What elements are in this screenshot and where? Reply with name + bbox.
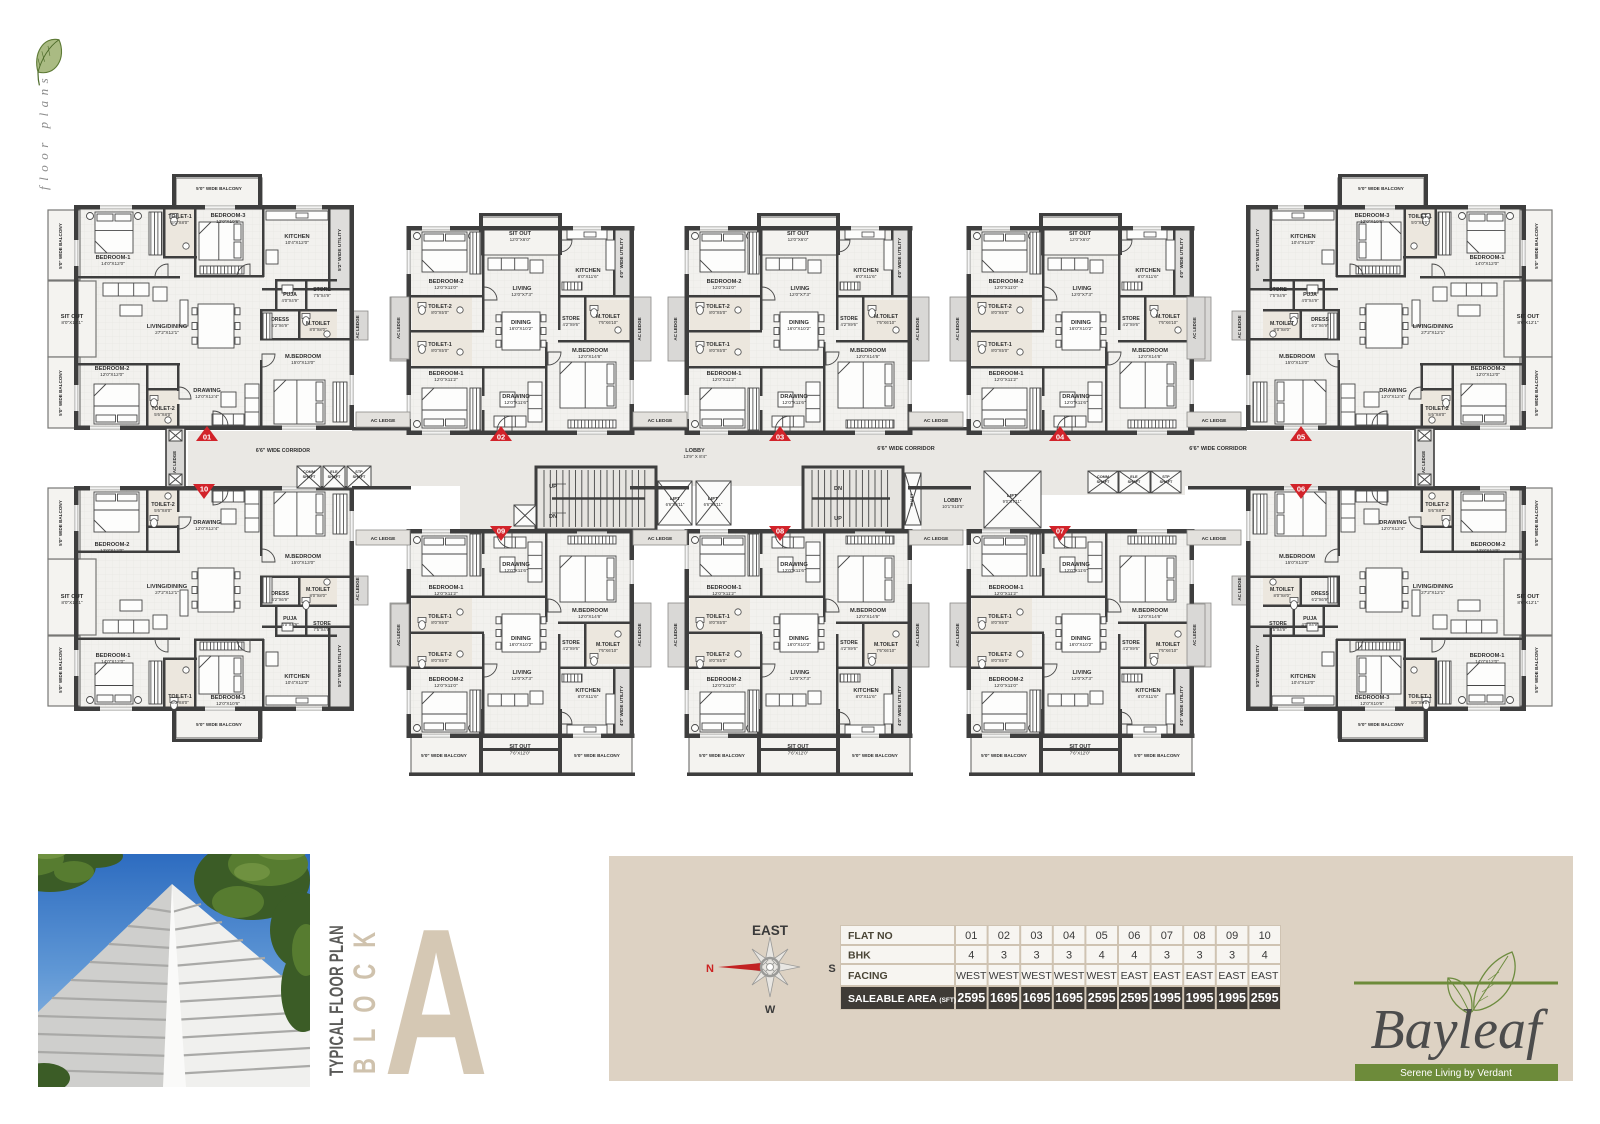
svg-text:BEDROOM-1: BEDROOM-1 <box>429 371 464 377</box>
svg-text:LIVING: LIVING <box>513 286 533 292</box>
svg-text:BEDROOM-1: BEDROOM-1 <box>429 585 464 591</box>
svg-text:EAST: EAST <box>1186 970 1214 982</box>
svg-text:KITCHEN: KITCHEN <box>1135 688 1160 694</box>
svg-text:LIVING: LIVING <box>513 670 533 676</box>
svg-text:TYPICAL FLOOR PLAN: TYPICAL FLOOR PLAN <box>325 925 347 1076</box>
svg-text:DINING: DINING <box>511 320 531 326</box>
svg-text:5'0" WIDE BALCONY: 5'0" WIDE BALCONY <box>1534 500 1539 546</box>
svg-text:LIVING: LIVING <box>791 670 811 676</box>
svg-text:5'6"X8'0": 5'6"X8'0" <box>154 412 172 417</box>
svg-text:16'0"X10'2": 16'0"X10'2" <box>1069 642 1093 647</box>
svg-text:8'0"X5'0": 8'0"X5'0" <box>709 620 727 625</box>
svg-text:15'0"X13'0": 15'0"X13'0" <box>291 560 315 565</box>
svg-text:SHAFT: SHAFT <box>909 493 914 507</box>
svg-text:27'2"X12'1": 27'2"X12'1" <box>1421 590 1445 595</box>
svg-text:TOILET-1: TOILET-1 <box>988 614 1012 620</box>
svg-text:BEDROOM-2: BEDROOM-2 <box>95 366 130 372</box>
svg-text:DINING: DINING <box>789 320 809 326</box>
svg-text:W: W <box>765 1004 776 1016</box>
svg-text:8'0"X5'0": 8'0"X5'0" <box>991 620 1009 625</box>
svg-text:KITCHEN: KITCHEN <box>853 688 878 694</box>
svg-text:7'6"X6'10": 7'6"X6'10" <box>876 648 896 653</box>
svg-text:8'0"X12'1": 8'0"X12'1" <box>1517 320 1538 325</box>
svg-text:SHAFT: SHAFT <box>328 475 341 479</box>
svg-text:STORE: STORE <box>1122 640 1140 646</box>
svg-text:STORE: STORE <box>562 316 580 322</box>
svg-text:12'0"X6'0": 12'0"X6'0" <box>1070 237 1091 242</box>
svg-text:9'0"X7'11": 9'0"X7'11" <box>1003 499 1022 504</box>
svg-text:TOILET-1: TOILET-1 <box>428 614 452 620</box>
svg-text:27'2"X12'1": 27'2"X12'1" <box>1421 330 1445 335</box>
svg-text:12'0"X12'0": 12'0"X12'0" <box>1476 372 1500 377</box>
svg-text:3: 3 <box>1164 950 1170 962</box>
svg-text:5'0"X8'0": 5'0"X8'0" <box>171 220 189 225</box>
svg-text:KITCHEN: KITCHEN <box>575 688 600 694</box>
svg-text:8'0"X11'6": 8'0"X11'6" <box>1138 694 1159 699</box>
svg-text:DRAWING: DRAWING <box>1062 562 1090 568</box>
svg-text:STP: STP <box>355 470 363 474</box>
svg-text:4'0" WIDE UTILITY: 4'0" WIDE UTILITY <box>619 686 624 726</box>
svg-text:TOILET-2: TOILET-2 <box>428 652 452 658</box>
svg-text:7'6"X12'0": 7'6"X12'0" <box>788 751 809 756</box>
svg-text:BEDROOM-1: BEDROOM-1 <box>1470 255 1505 261</box>
svg-text:STORE: STORE <box>1122 316 1140 322</box>
svg-text:12'0"X11'0": 12'0"X11'0" <box>434 683 458 688</box>
svg-text:TOILET-2: TOILET-2 <box>151 406 175 412</box>
svg-text:12'0"X11'2": 12'0"X11'2" <box>712 591 736 596</box>
svg-text:5'6"X8'0": 5'6"X8'0" <box>1428 508 1446 513</box>
svg-text:STORE: STORE <box>313 287 331 293</box>
svg-text:TOILET-2: TOILET-2 <box>428 304 452 310</box>
svg-text:5'0" WIDE BALCONY: 5'0" WIDE BALCONY <box>58 223 63 269</box>
svg-text:10'4"X12'0": 10'4"X12'0" <box>285 680 309 685</box>
svg-text:02: 02 <box>998 930 1010 942</box>
svg-text:ELE: ELE <box>1130 475 1138 479</box>
svg-text:5'0" WIDE BALCONY: 5'0" WIDE BALCONY <box>1534 370 1539 416</box>
svg-text:SHAFT: SHAFT <box>353 475 366 479</box>
svg-text:8'0"X5'0": 8'0"X5'0" <box>709 658 727 663</box>
svg-text:M.TOILET: M.TOILET <box>1270 587 1295 593</box>
svg-text:AC LEDGE: AC LEDGE <box>924 536 950 542</box>
svg-text:15'0"X13'0": 15'0"X13'0" <box>1285 360 1309 365</box>
svg-text:WEST: WEST <box>1087 970 1118 982</box>
svg-text:5'0" WIDE BALCONY: 5'0" WIDE BALCONY <box>1358 722 1404 727</box>
svg-text:15'0"X13'0": 15'0"X13'0" <box>291 360 315 365</box>
svg-text:2595: 2595 <box>957 991 985 1005</box>
svg-text:4'0"X4'9": 4'0"X4'9" <box>282 298 299 303</box>
svg-text:BEDROOM-1: BEDROOM-1 <box>989 371 1024 377</box>
svg-text:EAST: EAST <box>1251 970 1279 982</box>
svg-text:5'0"X8'0": 5'0"X8'0" <box>1411 220 1429 225</box>
svg-text:BEDROOM-2: BEDROOM-2 <box>989 677 1024 683</box>
svg-text:N: N <box>706 963 714 975</box>
svg-text:M.TOILET: M.TOILET <box>1270 321 1295 327</box>
svg-text:4'0"X4'9": 4'0"X4'9" <box>1302 298 1319 303</box>
svg-text:AC LEDGE: AC LEDGE <box>172 451 177 473</box>
svg-text:AC LEDGE: AC LEDGE <box>955 623 960 646</box>
svg-text:8'0"X8'0": 8'0"X8'0" <box>1274 593 1291 598</box>
svg-text:SHAFT: SHAFT <box>1097 480 1110 484</box>
svg-text:STORE: STORE <box>1269 621 1287 627</box>
svg-text:05: 05 <box>1096 930 1108 942</box>
svg-text:LOBBY: LOBBY <box>944 498 963 504</box>
svg-text:S: S <box>828 963 835 975</box>
svg-text:6'6"X6'11": 6'6"X6'11" <box>704 502 723 507</box>
svg-text:SIT OUT: SIT OUT <box>61 314 84 320</box>
svg-text:LIVING/DINING: LIVING/DINING <box>1413 584 1454 590</box>
svg-text:AC LEDGE: AC LEDGE <box>915 317 920 340</box>
svg-text:7'5"X4'9": 7'5"X4'9" <box>314 627 331 632</box>
svg-text:12'0"X12'0": 12'0"X12'0" <box>100 548 124 553</box>
svg-text:7'6"X6'10": 7'6"X6'10" <box>876 320 896 325</box>
svg-text:10'4"X12'0": 10'4"X12'0" <box>285 240 309 245</box>
svg-text:27'2"X12'1": 27'2"X12'1" <box>155 330 179 335</box>
svg-text:TOILET-2: TOILET-2 <box>706 652 730 658</box>
svg-text:6'6" WIDE CORRIDOR: 6'6" WIDE CORRIDOR <box>877 446 934 452</box>
svg-text:EAST: EAST <box>1218 970 1246 982</box>
svg-text:TOILET-2: TOILET-2 <box>988 304 1012 310</box>
svg-text:05: 05 <box>1297 433 1305 442</box>
svg-text:12'0"X12'0": 12'0"X12'0" <box>100 372 124 377</box>
svg-text:12'0"X6'0": 12'0"X6'0" <box>788 237 809 242</box>
svg-text:LIVING: LIVING <box>791 286 811 292</box>
svg-text:12'0"X11'6": 12'0"X11'6" <box>782 400 806 405</box>
svg-text:AC LEDGE: AC LEDGE <box>915 623 920 646</box>
svg-text:DRAWING: DRAWING <box>1379 520 1407 526</box>
svg-text:TOILET-1: TOILET-1 <box>428 342 452 348</box>
svg-text:16'0"X10'2": 16'0"X10'2" <box>1069 326 1093 331</box>
svg-text:LIVING: LIVING <box>1073 670 1093 676</box>
svg-text:12'0"X11'0": 12'0"X11'0" <box>994 683 1018 688</box>
svg-text:EAST: EAST <box>752 923 789 938</box>
svg-text:12'0"X12'4": 12'0"X12'4" <box>1381 394 1405 399</box>
svg-text:AC LEDGE: AC LEDGE <box>355 315 360 338</box>
svg-text:BEDROOM-3: BEDROOM-3 <box>211 213 246 219</box>
svg-text:WEST: WEST <box>1054 970 1085 982</box>
svg-text:M.BEDROOM: M.BEDROOM <box>572 608 608 614</box>
svg-text:8'0"X12'1": 8'0"X12'1" <box>61 600 82 605</box>
svg-text:Serene Living by Verdant: Serene Living by Verdant <box>1400 1068 1512 1079</box>
svg-text:12'0"X11'0": 12'0"X11'0" <box>712 285 736 290</box>
svg-text:BEDROOM-3: BEDROOM-3 <box>211 695 246 701</box>
svg-text:TOILET-1: TOILET-1 <box>1408 214 1432 220</box>
svg-text:09: 09 <box>1226 930 1238 942</box>
svg-text:SIT OUT: SIT OUT <box>787 231 810 237</box>
svg-text:15'0"X13'0": 15'0"X13'0" <box>1285 560 1309 565</box>
svg-text:LIVING/DINING: LIVING/DINING <box>147 324 188 330</box>
svg-text:1995: 1995 <box>1153 991 1181 1005</box>
svg-text:DRAWING: DRAWING <box>502 394 530 400</box>
svg-text:M.BEDROOM: M.BEDROOM <box>572 348 608 354</box>
svg-text:12'0"X11'6": 12'0"X11'6" <box>782 568 806 573</box>
svg-text:DRAWING: DRAWING <box>1062 394 1090 400</box>
svg-text:M.BEDROOM: M.BEDROOM <box>1279 554 1315 560</box>
svg-text:12'0"X14'6": 12'0"X14'6" <box>1138 614 1162 619</box>
svg-text:3: 3 <box>1196 950 1202 962</box>
svg-text:DRAWING: DRAWING <box>780 394 808 400</box>
svg-text:4'0" WIDE UTILITY: 4'0" WIDE UTILITY <box>1179 686 1184 726</box>
svg-text:FLAT NO: FLAT NO <box>848 930 893 942</box>
svg-text:1695: 1695 <box>990 991 1018 1005</box>
svg-text:8'0"X5'0": 8'0"X5'0" <box>709 310 727 315</box>
svg-text:DINING: DINING <box>1071 636 1091 642</box>
svg-text:WEST: WEST <box>1021 970 1052 982</box>
svg-text:DRAWING: DRAWING <box>193 388 221 394</box>
svg-text:4'2"X9'6": 4'2"X9'6" <box>563 322 580 327</box>
svg-text:08: 08 <box>1193 930 1205 942</box>
svg-text:07: 07 <box>1056 527 1064 536</box>
svg-text:WEST: WEST <box>989 970 1020 982</box>
svg-text:5'0" WIDE BALCONY: 5'0" WIDE BALCONY <box>58 370 63 416</box>
svg-text:7'5"X4'9": 7'5"X4'9" <box>1270 627 1287 632</box>
svg-text:TOILET-1: TOILET-1 <box>1408 694 1432 700</box>
svg-text:COMM: COMM <box>303 470 315 474</box>
svg-text:3: 3 <box>1229 950 1235 962</box>
svg-text:5'2" WIDE UTILITY: 5'2" WIDE UTILITY <box>1255 644 1261 687</box>
svg-text:AC LEDGE: AC LEDGE <box>396 317 401 339</box>
svg-text:DRESS: DRESS <box>1311 591 1329 597</box>
svg-text:03: 03 <box>776 433 784 442</box>
svg-text:5'0" WIDE BALCONY: 5'0" WIDE BALCONY <box>58 647 63 693</box>
svg-text:AC LEDGE: AC LEDGE <box>1192 317 1197 339</box>
svg-text:M.BEDROOM: M.BEDROOM <box>285 354 321 360</box>
svg-text:7'6"X6'10": 7'6"X6'10" <box>1158 320 1178 325</box>
svg-text:4'0"X4'9": 4'0"X4'9" <box>282 622 299 627</box>
svg-text:12'0"X11'0": 12'0"X11'0" <box>994 285 1018 290</box>
svg-text:PUJA: PUJA <box>283 292 297 298</box>
svg-text:12'0"X11'0": 12'0"X11'0" <box>712 683 736 688</box>
svg-text:12'0"X14'6": 12'0"X14'6" <box>856 614 880 619</box>
svg-text:Bayleaf: Bayleaf <box>1370 999 1548 1061</box>
svg-text:5'0" WIDE BALCONY: 5'0" WIDE BALCONY <box>981 753 1027 758</box>
svg-text:5'0" WIDE BALCONY: 5'0" WIDE BALCONY <box>852 753 898 758</box>
svg-text:FACING: FACING <box>848 970 888 982</box>
svg-text:STORE: STORE <box>1269 287 1287 293</box>
svg-text:BEDROOM-2: BEDROOM-2 <box>429 677 464 683</box>
svg-text:5'0" WIDE BALCONY: 5'0" WIDE BALCONY <box>1534 647 1539 693</box>
svg-text:AC LEDGE: AC LEDGE <box>673 623 678 646</box>
svg-text:12'0"X14'6": 12'0"X14'6" <box>578 354 602 359</box>
svg-text:AC LEDGE: AC LEDGE <box>637 623 642 646</box>
svg-text:SHAFT: SHAFT <box>303 475 316 479</box>
svg-text:PUJA: PUJA <box>1303 616 1317 622</box>
svg-text:AC LEDGE: AC LEDGE <box>1192 624 1197 646</box>
svg-text:12'0"X11'2": 12'0"X11'2" <box>434 591 458 596</box>
svg-text:AC LEDGE: AC LEDGE <box>924 418 950 424</box>
svg-text:06: 06 <box>1297 485 1305 494</box>
svg-text:3: 3 <box>1033 950 1039 962</box>
svg-text:6'2"X6'9": 6'2"X6'9" <box>1312 597 1329 602</box>
svg-text:8'0"X8'0": 8'0"X8'0" <box>1274 327 1291 332</box>
svg-text:TOILET-2: TOILET-2 <box>1425 406 1449 412</box>
svg-text:14'0"X12'0": 14'0"X12'0" <box>101 261 125 266</box>
svg-text:12'0"X7'3": 12'0"X7'3" <box>789 292 810 297</box>
svg-text:12'0"X11'6": 12'0"X11'6" <box>1064 400 1088 405</box>
svg-text:5'0" WIDE BALCONY: 5'0" WIDE BALCONY <box>699 753 745 758</box>
svg-text:04: 04 <box>1056 433 1065 442</box>
svg-text:M.TOILET: M.TOILET <box>1156 642 1181 648</box>
svg-text:KITCHEN: KITCHEN <box>1290 674 1315 680</box>
svg-text:DN: DN <box>549 514 557 520</box>
svg-text:8'0"X11'6": 8'0"X11'6" <box>856 694 877 699</box>
svg-text:M.BEDROOM: M.BEDROOM <box>1132 348 1168 354</box>
svg-text:8'0"X5'0": 8'0"X5'0" <box>991 348 1009 353</box>
svg-text:6'6" WIDE CORRIDOR: 6'6" WIDE CORRIDOR <box>256 448 310 454</box>
svg-text:4'0" WIDE UTILITY: 4'0" WIDE UTILITY <box>897 686 902 726</box>
svg-text:7'6"X12'0": 7'6"X12'0" <box>510 751 531 756</box>
svg-text:12'0"X10'6": 12'0"X10'6" <box>216 219 240 224</box>
svg-text:8'0"X12'1": 8'0"X12'1" <box>61 320 82 325</box>
svg-text:AC LEDGE: AC LEDGE <box>1202 536 1228 542</box>
svg-text:5'0" WIDE BALCONY: 5'0" WIDE BALCONY <box>196 722 242 727</box>
svg-text:01: 01 <box>965 930 977 942</box>
svg-text:5'2" WIDE UTILITY: 5'2" WIDE UTILITY <box>337 644 343 687</box>
svg-text:10: 10 <box>1259 930 1271 942</box>
svg-text:TOILET-1: TOILET-1 <box>988 342 1012 348</box>
svg-text:8'0"X11'6": 8'0"X11'6" <box>578 694 599 699</box>
svg-text:2595: 2595 <box>1088 991 1116 1005</box>
svg-text:DINING: DINING <box>789 636 809 642</box>
svg-text:KITCHEN: KITCHEN <box>284 674 309 680</box>
svg-text:6'6"X6'11": 6'6"X6'11" <box>666 502 685 507</box>
svg-text:3: 3 <box>1066 950 1072 962</box>
svg-text:5'0" WIDE BALCONY: 5'0" WIDE BALCONY <box>196 186 242 191</box>
svg-text:12'0"X14'6": 12'0"X14'6" <box>856 354 880 359</box>
svg-text:10'1"X10'5": 10'1"X10'5" <box>942 504 964 509</box>
svg-text:KITCHEN: KITCHEN <box>284 234 309 240</box>
svg-text:AC LEDGE: AC LEDGE <box>371 418 397 424</box>
svg-text:M.TOILET: M.TOILET <box>306 587 331 593</box>
svg-text:TOILET-1: TOILET-1 <box>168 214 192 220</box>
svg-text:STORE: STORE <box>562 640 580 646</box>
svg-text:8'0"X5'0": 8'0"X5'0" <box>431 348 449 353</box>
svg-text:8'0"X5'0": 8'0"X5'0" <box>991 658 1009 663</box>
svg-text:1995: 1995 <box>1218 991 1246 1005</box>
svg-text:10'4"X12'0": 10'4"X12'0" <box>1291 680 1315 685</box>
svg-text:8'0"X11'6": 8'0"X11'6" <box>856 274 877 279</box>
svg-text:02: 02 <box>497 433 505 442</box>
svg-text:1695: 1695 <box>1023 991 1051 1005</box>
svg-text:LIVING: LIVING <box>1073 286 1093 292</box>
svg-text:03: 03 <box>1030 930 1042 942</box>
svg-text:AC LEDGE: AC LEDGE <box>955 317 960 340</box>
svg-text:5'0" WIDE BALCONY: 5'0" WIDE BALCONY <box>58 500 63 546</box>
svg-text:5'0" WIDE BALCONY: 5'0" WIDE BALCONY <box>1358 186 1404 191</box>
svg-text:14'0"X12'0": 14'0"X12'0" <box>1475 261 1499 266</box>
svg-text:STORE: STORE <box>313 621 331 627</box>
svg-text:BEDROOM-1: BEDROOM-1 <box>707 371 742 377</box>
svg-text:5'0" WIDE BALCONY: 5'0" WIDE BALCONY <box>1134 753 1180 758</box>
svg-text:EAST: EAST <box>1121 970 1149 982</box>
svg-text:STORE: STORE <box>840 640 858 646</box>
svg-text:8'0"X5'0": 8'0"X5'0" <box>709 348 727 353</box>
svg-text:TOILET-2: TOILET-2 <box>1425 502 1449 508</box>
svg-text:AC LEDGE: AC LEDGE <box>637 317 642 340</box>
svg-text:DINING: DINING <box>511 636 531 642</box>
svg-text:4'0" WIDE UTILITY: 4'0" WIDE UTILITY <box>1179 238 1184 278</box>
svg-text:08: 08 <box>776 527 784 536</box>
svg-text:M.BEDROOM: M.BEDROOM <box>1279 354 1315 360</box>
svg-text:3: 3 <box>1001 950 1007 962</box>
svg-text:AC LEDGE: AC LEDGE <box>1421 451 1426 473</box>
svg-text:SIT OUT: SIT OUT <box>1517 594 1540 600</box>
svg-text:7'6"X12'0": 7'6"X12'0" <box>1070 751 1091 756</box>
svg-text:1695: 1695 <box>1055 991 1083 1005</box>
svg-text:4'2"X9'6": 4'2"X9'6" <box>1123 646 1140 651</box>
svg-text:7'6"X6'10": 7'6"X6'10" <box>598 320 618 325</box>
svg-text:STP: STP <box>1162 475 1170 479</box>
svg-text:14'0"X12'0": 14'0"X12'0" <box>101 659 125 664</box>
svg-text:6'2"X6'9": 6'2"X6'9" <box>272 323 289 328</box>
svg-text:DRAWING: DRAWING <box>193 520 221 526</box>
svg-text:SIT OUT: SIT OUT <box>1069 231 1092 237</box>
svg-text:BEDROOM-1: BEDROOM-1 <box>96 653 131 659</box>
svg-text:M.TOILET: M.TOILET <box>306 321 331 327</box>
svg-text:BEDROOM-1: BEDROOM-1 <box>989 585 1024 591</box>
svg-text:AC LEDGE: AC LEDGE <box>648 418 674 424</box>
svg-text:BEDROOM-3: BEDROOM-3 <box>1355 213 1390 219</box>
svg-text:8'0"X5'0": 8'0"X5'0" <box>431 310 449 315</box>
svg-text:AC LEDGE: AC LEDGE <box>1202 418 1228 424</box>
svg-text:4'0" WIDE UTILITY: 4'0" WIDE UTILITY <box>897 238 902 278</box>
svg-text:KITCHEN: KITCHEN <box>853 268 878 274</box>
svg-text:12'0"X12'4": 12'0"X12'4" <box>195 526 219 531</box>
svg-text:AC LEDGE: AC LEDGE <box>648 536 674 542</box>
svg-text:04: 04 <box>1063 930 1075 942</box>
svg-text:TOILET-2: TOILET-2 <box>706 304 730 310</box>
svg-text:PUJA: PUJA <box>1303 292 1317 298</box>
svg-text:BEDROOM-2: BEDROOM-2 <box>95 542 130 548</box>
svg-text:2595: 2595 <box>1120 991 1148 1005</box>
svg-text:12'0"X7'3": 12'0"X7'3" <box>789 676 810 681</box>
svg-text:12'0"X10'6": 12'0"X10'6" <box>1360 219 1384 224</box>
svg-text:TOILET-2: TOILET-2 <box>988 652 1012 658</box>
svg-text:STORE: STORE <box>840 316 858 322</box>
svg-text:UP: UP <box>549 484 557 490</box>
svg-text:16'0"X10'2": 16'0"X10'2" <box>787 326 811 331</box>
svg-text:16'0"X10'2": 16'0"X10'2" <box>509 642 533 647</box>
svg-text:13'9" X 8'4": 13'9" X 8'4" <box>683 454 707 459</box>
svg-text:DRESS: DRESS <box>1311 317 1329 323</box>
svg-text:DINING: DINING <box>1071 320 1091 326</box>
svg-text:12'0"X7'3": 12'0"X7'3" <box>1071 292 1092 297</box>
svg-text:5'2" WIDE UTILITY: 5'2" WIDE UTILITY <box>337 228 343 271</box>
svg-text:07: 07 <box>1161 930 1173 942</box>
svg-text:BLOCK: BLOCK <box>346 916 382 1074</box>
svg-text:5'0" WIDE BALCONY: 5'0" WIDE BALCONY <box>574 753 620 758</box>
svg-text:M.TOILET: M.TOILET <box>874 314 899 320</box>
svg-text:5'6"X8'0": 5'6"X8'0" <box>1428 412 1446 417</box>
svg-text:12'0"X11'2": 12'0"X11'2" <box>994 377 1018 382</box>
svg-text:5'0" WIDE BALCONY: 5'0" WIDE BALCONY <box>421 753 467 758</box>
svg-text:01: 01 <box>203 433 211 442</box>
svg-text:6'2"X6'9": 6'2"X6'9" <box>1312 323 1329 328</box>
svg-text:2595: 2595 <box>1251 991 1279 1005</box>
svg-text:DN: DN <box>834 486 842 492</box>
svg-text:12'0"X11'2": 12'0"X11'2" <box>434 377 458 382</box>
svg-text:M.BEDROOM: M.BEDROOM <box>850 608 886 614</box>
svg-text:12'0"X11'0": 12'0"X11'0" <box>434 285 458 290</box>
svg-text:8'0"X5'0": 8'0"X5'0" <box>431 658 449 663</box>
svg-text:8'0"X5'0": 8'0"X5'0" <box>991 310 1009 315</box>
svg-text:DRAWING: DRAWING <box>502 562 530 568</box>
svg-text:DRESS: DRESS <box>271 317 289 323</box>
svg-text:16'0"X10'2": 16'0"X10'2" <box>787 642 811 647</box>
svg-text:BEDROOM-1: BEDROOM-1 <box>96 255 131 261</box>
svg-text:UP: UP <box>834 516 842 522</box>
svg-text:KITCHEN: KITCHEN <box>1290 234 1315 240</box>
svg-text:7'5"X4'9": 7'5"X4'9" <box>1270 293 1287 298</box>
